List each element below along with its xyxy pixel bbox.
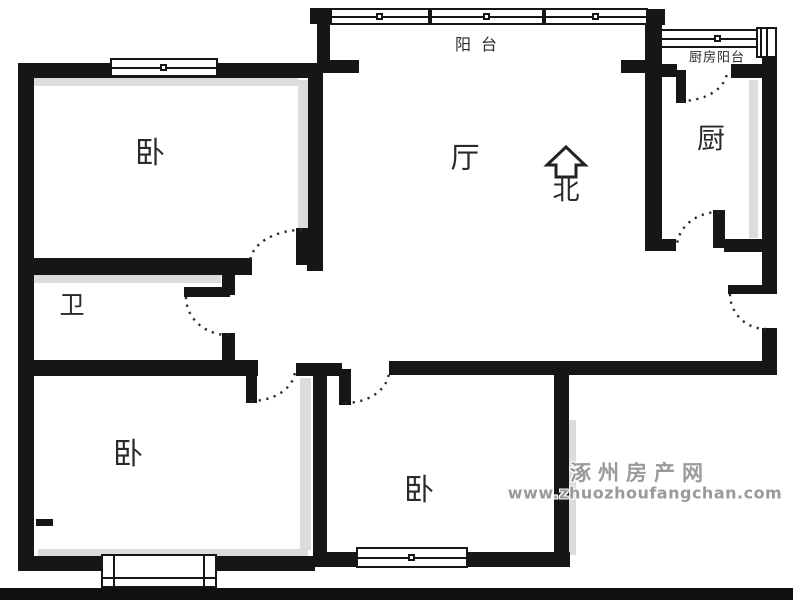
room-label-kitchen-balcony: 厨房阳台 (689, 52, 745, 65)
door-arcs-layer (0, 0, 793, 600)
room-label-balcony: 阳台 (455, 37, 507, 53)
floor-plan-canvas: 涿州房产网 www.zhuozhoufangchan.com 卧厅卫厨卧卧阳台厨… (0, 0, 793, 600)
room-label-living-room: 厅 (450, 144, 479, 173)
room-label-bedroom-bottom-center: 卧 (404, 476, 434, 506)
north-label: 北 (553, 178, 580, 205)
watermark-site-name: 涿州房产网 (570, 457, 710, 487)
bathroom-door-arc (186, 297, 228, 335)
entrance-door-arc (730, 294, 766, 329)
north-arrow-icon (547, 147, 585, 177)
bedroom-bottom-center-door-arc (345, 371, 389, 403)
room-label-kitchen: 厨 (697, 125, 725, 153)
room-label-bedroom-bottom-left: 卧 (113, 440, 143, 470)
bedroom-top-left-door-arc (250, 230, 302, 263)
room-label-bedroom-top-left: 卧 (135, 139, 165, 169)
bottom-letterbox-bar (0, 588, 793, 600)
kitchen-balcony-door-arc (681, 71, 727, 101)
watermark-site-url: www.zhuozhoufangchan.com (508, 484, 782, 503)
bedroom-bottom-left-door-arc (251, 370, 295, 401)
kitchen-door-arc (677, 212, 719, 247)
room-label-bathroom: 卫 (59, 293, 84, 318)
